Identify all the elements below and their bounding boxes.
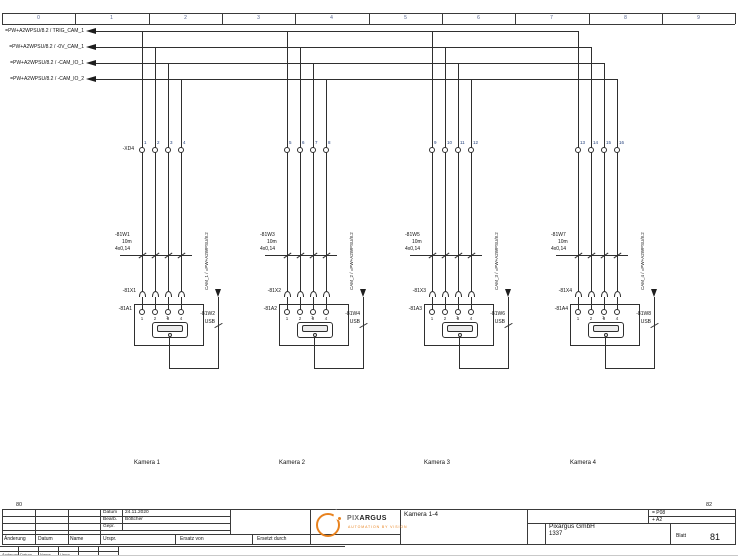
column-number: 6 [442,15,515,21]
socket-pin-icon [139,309,145,315]
device-label: -81A1 [98,306,132,312]
terminal-number: 12 [473,140,478,145]
signal-ref-cam-io-2: =PW+A2WPSU/8.2 / -CAM_IO_2 [2,76,84,82]
terminal-icon [468,147,474,153]
signal-ref-cam-io-1: =PW+A2WPSU/8.2 / -CAM_IO_1 [2,60,84,66]
bus-wire-trig [96,31,578,32]
wire [591,47,592,310]
usb-wire [314,368,364,369]
cable-label: -81W7 10m 4x0,14 [551,232,585,253]
usb-wire [459,338,460,369]
company-name: Pixargus GmbH [549,523,595,530]
plug-contact-icon [468,291,475,297]
pin-number: 1 [575,316,581,321]
mini-label-name: Name [40,552,51,556]
terminal-number: 2 [157,140,160,145]
prev-page-ref: 80 [16,502,22,508]
terminal-number: 10 [447,140,452,145]
usb-destination-ref: CAM_4 / =PW+A2WPSU/8.2 [640,228,647,290]
column-number: 5 [369,15,442,21]
plug-contact-icon [588,291,595,297]
terminal-number: 14 [593,140,598,145]
cable-tag: -81W3 [260,232,294,239]
plug-contact-icon [323,291,330,297]
tb-label-name: Name [70,536,83,542]
tb-label-ersatz-von: Ersatz von [180,536,204,542]
usb-connector-pin [313,333,317,337]
plug-contact-icon [152,291,159,297]
terminal-icon [614,147,620,153]
logo-argus: ARGUS [359,515,386,522]
terminal-icon [442,147,448,153]
pin-number: 1 [429,316,435,321]
tb-divider [230,509,231,534]
plug-contact-icon [455,291,462,297]
usb-destination-ref: CAM_2 / =PW+A2WPSU/8.2 [349,228,356,290]
sheet-label: Blatt [676,533,686,539]
column-divider [735,13,736,24]
wire [326,79,327,310]
terminal-icon [455,147,461,153]
terminal-number: 7 [315,140,318,145]
socket-pin-icon [284,309,290,315]
pin-number: 2 [152,316,158,321]
tb-label-aenderung: Änderung [4,536,26,542]
terminal-icon [284,147,290,153]
connector-label: -81X1 [106,288,136,294]
terminal-number: 1 [144,140,147,145]
column-number: 4 [295,15,368,21]
usb-cable-type: USB [620,319,651,325]
destination-arrow-icon [360,289,366,297]
plug-contact-icon [284,291,291,297]
destination-arrow-icon [651,289,657,297]
schematic-sheet: 0 1 2 3 4 5 6 7 8 9 =PW+A2WPSU/8.2 / TRI… [0,0,738,556]
pin-number: 2 [588,316,594,321]
tb-label-gepr: Gepr. [103,524,115,529]
plug-contact-icon [297,291,304,297]
device-label: -81A4 [534,306,568,312]
tb-bearb-value: Böttcher [125,517,143,522]
usb-connector-pin [168,333,172,337]
wire [142,31,143,310]
camera-title: Kamera 3 [407,460,467,466]
usb-destination-ref: CAM_3 / =PW+A2WPSU/8.2 [494,228,501,290]
bus-wire-0v [96,47,591,48]
source-arrow-icon [86,60,96,66]
destination-arrow-icon [505,289,511,297]
plug-contact-icon [139,291,146,297]
usb-cable-type: USB [184,319,215,325]
tb-divider [100,509,101,545]
tb-divider [527,509,528,545]
cable-tag: -81W7 [551,232,585,239]
socket-pin-icon [442,309,448,315]
socket-pin-icon [152,309,158,315]
terminal-number: 8 [328,140,331,145]
bus-wire-io1 [96,63,604,64]
usb-wire [605,368,655,369]
cable-length: 10m [412,239,439,246]
source-arrow-icon [86,76,96,82]
plug-contact-icon [178,291,185,297]
tb-divider [670,523,671,545]
signal-ref-0v-cam-1: =PW+A2WPSU/8.2 / -0V_CAM_1 [2,44,84,50]
socket-pin-icon [297,309,303,315]
tb-label-datum: Datum [103,510,117,515]
cable-spec: 4x0,14 [115,246,149,253]
project-number: 1337 [549,531,562,537]
terminal-icon [601,147,607,153]
frame-top-line2 [2,24,735,25]
usb-wire [508,297,509,369]
wire [300,47,301,310]
wire [287,31,288,310]
usb-cable-tag: -81W8 [620,311,651,317]
device-label: -81A3 [388,306,422,312]
usb-cable-tag: -81W2 [184,311,215,317]
pin-number: 2 [297,316,303,321]
wire [155,47,156,310]
usb-cable-type: USB [329,319,360,325]
terminal-number: 13 [580,140,585,145]
tb-label-urspr: Urspr. [103,536,116,542]
terminal-icon [297,147,303,153]
socket-pin-icon [429,309,435,315]
cable-length: 10m [558,239,585,246]
column-number: 9 [662,15,735,21]
column-number: 8 [589,15,662,21]
usb-port-number: 1 [166,315,169,320]
column-number: 0 [2,15,75,21]
usb-cable-tag: -81W6 [474,311,505,317]
cable-spec: 4x0,14 [551,246,585,253]
terminal-icon [178,147,184,153]
terminal-number: 16 [619,140,624,145]
usb-wire [654,297,655,369]
wire [617,79,618,310]
usb-cable-type: USB [474,319,505,325]
terminal-number: 6 [302,140,305,145]
terminal-number: 5 [289,140,292,145]
location-ref: + A2 [652,517,662,523]
wire [168,63,169,310]
plug-contact-icon [310,291,317,297]
mini-strip-line [0,546,345,547]
usb-wire [363,297,364,369]
wire [445,47,446,310]
terminal-number: 15 [606,140,611,145]
terminal-strip-label: -XD4 [100,146,134,152]
mini-label-urspr: Urspr. [60,552,71,556]
column-number: 2 [149,15,222,21]
pin-number: 2 [442,316,448,321]
plug-contact-icon [165,291,172,297]
source-arrow-icon [86,28,96,34]
cable-label: -81W1 10m 4x0,14 [115,232,149,253]
usb-wire [169,368,219,369]
terminal-number: 3 [170,140,173,145]
plug-contact-icon [614,291,621,297]
connector-label: -81X4 [542,288,572,294]
camera-title: Kamera 2 [262,460,322,466]
column-number: 1 [75,15,148,21]
tb-line [2,534,400,535]
connector-label: -81X2 [251,288,281,294]
cable-tag: -81W5 [405,232,439,239]
logo-pix: PIX [347,515,359,522]
connector-label: -81X3 [396,288,426,294]
wire [458,63,459,310]
usb-wire [169,338,170,369]
usb-connector-pin [604,333,608,337]
pin-number: 1 [284,316,290,321]
tb-divider [545,523,546,545]
tb-datum-value: 24.11.2020 [125,510,149,515]
bus-wire-io2 [96,79,617,80]
column-number: 7 [515,15,588,21]
plug-contact-icon [575,291,582,297]
tb-divider [35,509,36,545]
plug-contact-icon [442,291,449,297]
cable-label: -81W5 10m 4x0,14 [405,232,439,253]
pin-number: 1 [139,316,145,321]
cable-spec: 4x0,14 [405,246,439,253]
camera-title: Kamera 1 [117,460,177,466]
usb-wire [459,368,509,369]
terminal-icon [139,147,145,153]
terminal-number: 9 [434,140,437,145]
camera-title: Kamera 4 [553,460,613,466]
usb-connector-inner [302,325,328,332]
terminal-icon [575,147,581,153]
tb-divider [122,509,123,530]
source-arrow-icon [86,44,96,50]
usb-connector-pin [458,333,462,337]
usb-wire [218,297,219,369]
plug-contact-icon [429,291,436,297]
usb-connector-inner [593,325,619,332]
pixargus-logo-tagline: AUTOMATION BY VISION [348,525,407,529]
usb-port-number: 1 [456,315,459,320]
cable-tag: -81W1 [115,232,149,239]
terminal-icon [165,147,171,153]
wire [313,63,314,310]
tb-line [2,530,230,531]
terminal-number: 4 [183,140,186,145]
next-page-ref: 82 [706,502,712,508]
usb-connector-inner [447,325,473,332]
tb-label-datum2: Datum [38,536,53,542]
usb-wire [605,338,606,369]
usb-cable-tag: -81W4 [329,311,360,317]
mini-divider [118,546,119,555]
mini-label-aenderung: Änderung [2,552,19,556]
plug-contact-icon [601,291,608,297]
sheet-number: 81 [710,532,720,542]
wire [432,31,433,310]
cable-spec: 4x0,14 [260,246,294,253]
wire [604,63,605,310]
tb-divider [175,534,176,545]
socket-pin-icon [575,309,581,315]
tb-line [2,523,230,524]
usb-port-number: 1 [602,315,605,320]
tb-divider [252,534,253,545]
plant-ref: = P08 [652,510,665,516]
tb-label-ersetzt-durch: Ersetzt durch [257,536,286,542]
column-number: 3 [222,15,295,21]
pixargus-logo-dot-icon [338,517,341,520]
usb-wire [314,338,315,369]
mini-label-datum: Datum [20,552,32,556]
wire [181,79,182,310]
usb-port-number: 1 [311,315,314,320]
cable-length: 10m [267,239,294,246]
terminal-icon [323,147,329,153]
tb-divider [310,509,311,545]
terminal-icon [429,147,435,153]
usb-destination-ref: CAM_1 / =PW+A2WPSU/8.2 [204,228,211,290]
tb-label-bearb: Bearb. [103,517,117,522]
pixargus-logo-text: PIXARGUS [347,515,387,522]
terminal-number: 11 [460,140,465,145]
signal-ref-trig-cam-1: =PW+A2WPSU/8.2 / TRIG_CAM_1 [2,28,84,34]
drawing-title: Kamera 1-4 [404,511,438,518]
device-label: -81A2 [243,306,277,312]
destination-arrow-icon [215,289,221,297]
terminal-icon [588,147,594,153]
cable-length: 10m [122,239,149,246]
terminal-icon [310,147,316,153]
wire [471,79,472,310]
wire [578,31,579,310]
socket-pin-icon [588,309,594,315]
terminal-icon [152,147,158,153]
usb-connector-inner [157,325,183,332]
cable-label: -81W3 10m 4x0,14 [260,232,294,253]
tb-divider [68,509,69,545]
